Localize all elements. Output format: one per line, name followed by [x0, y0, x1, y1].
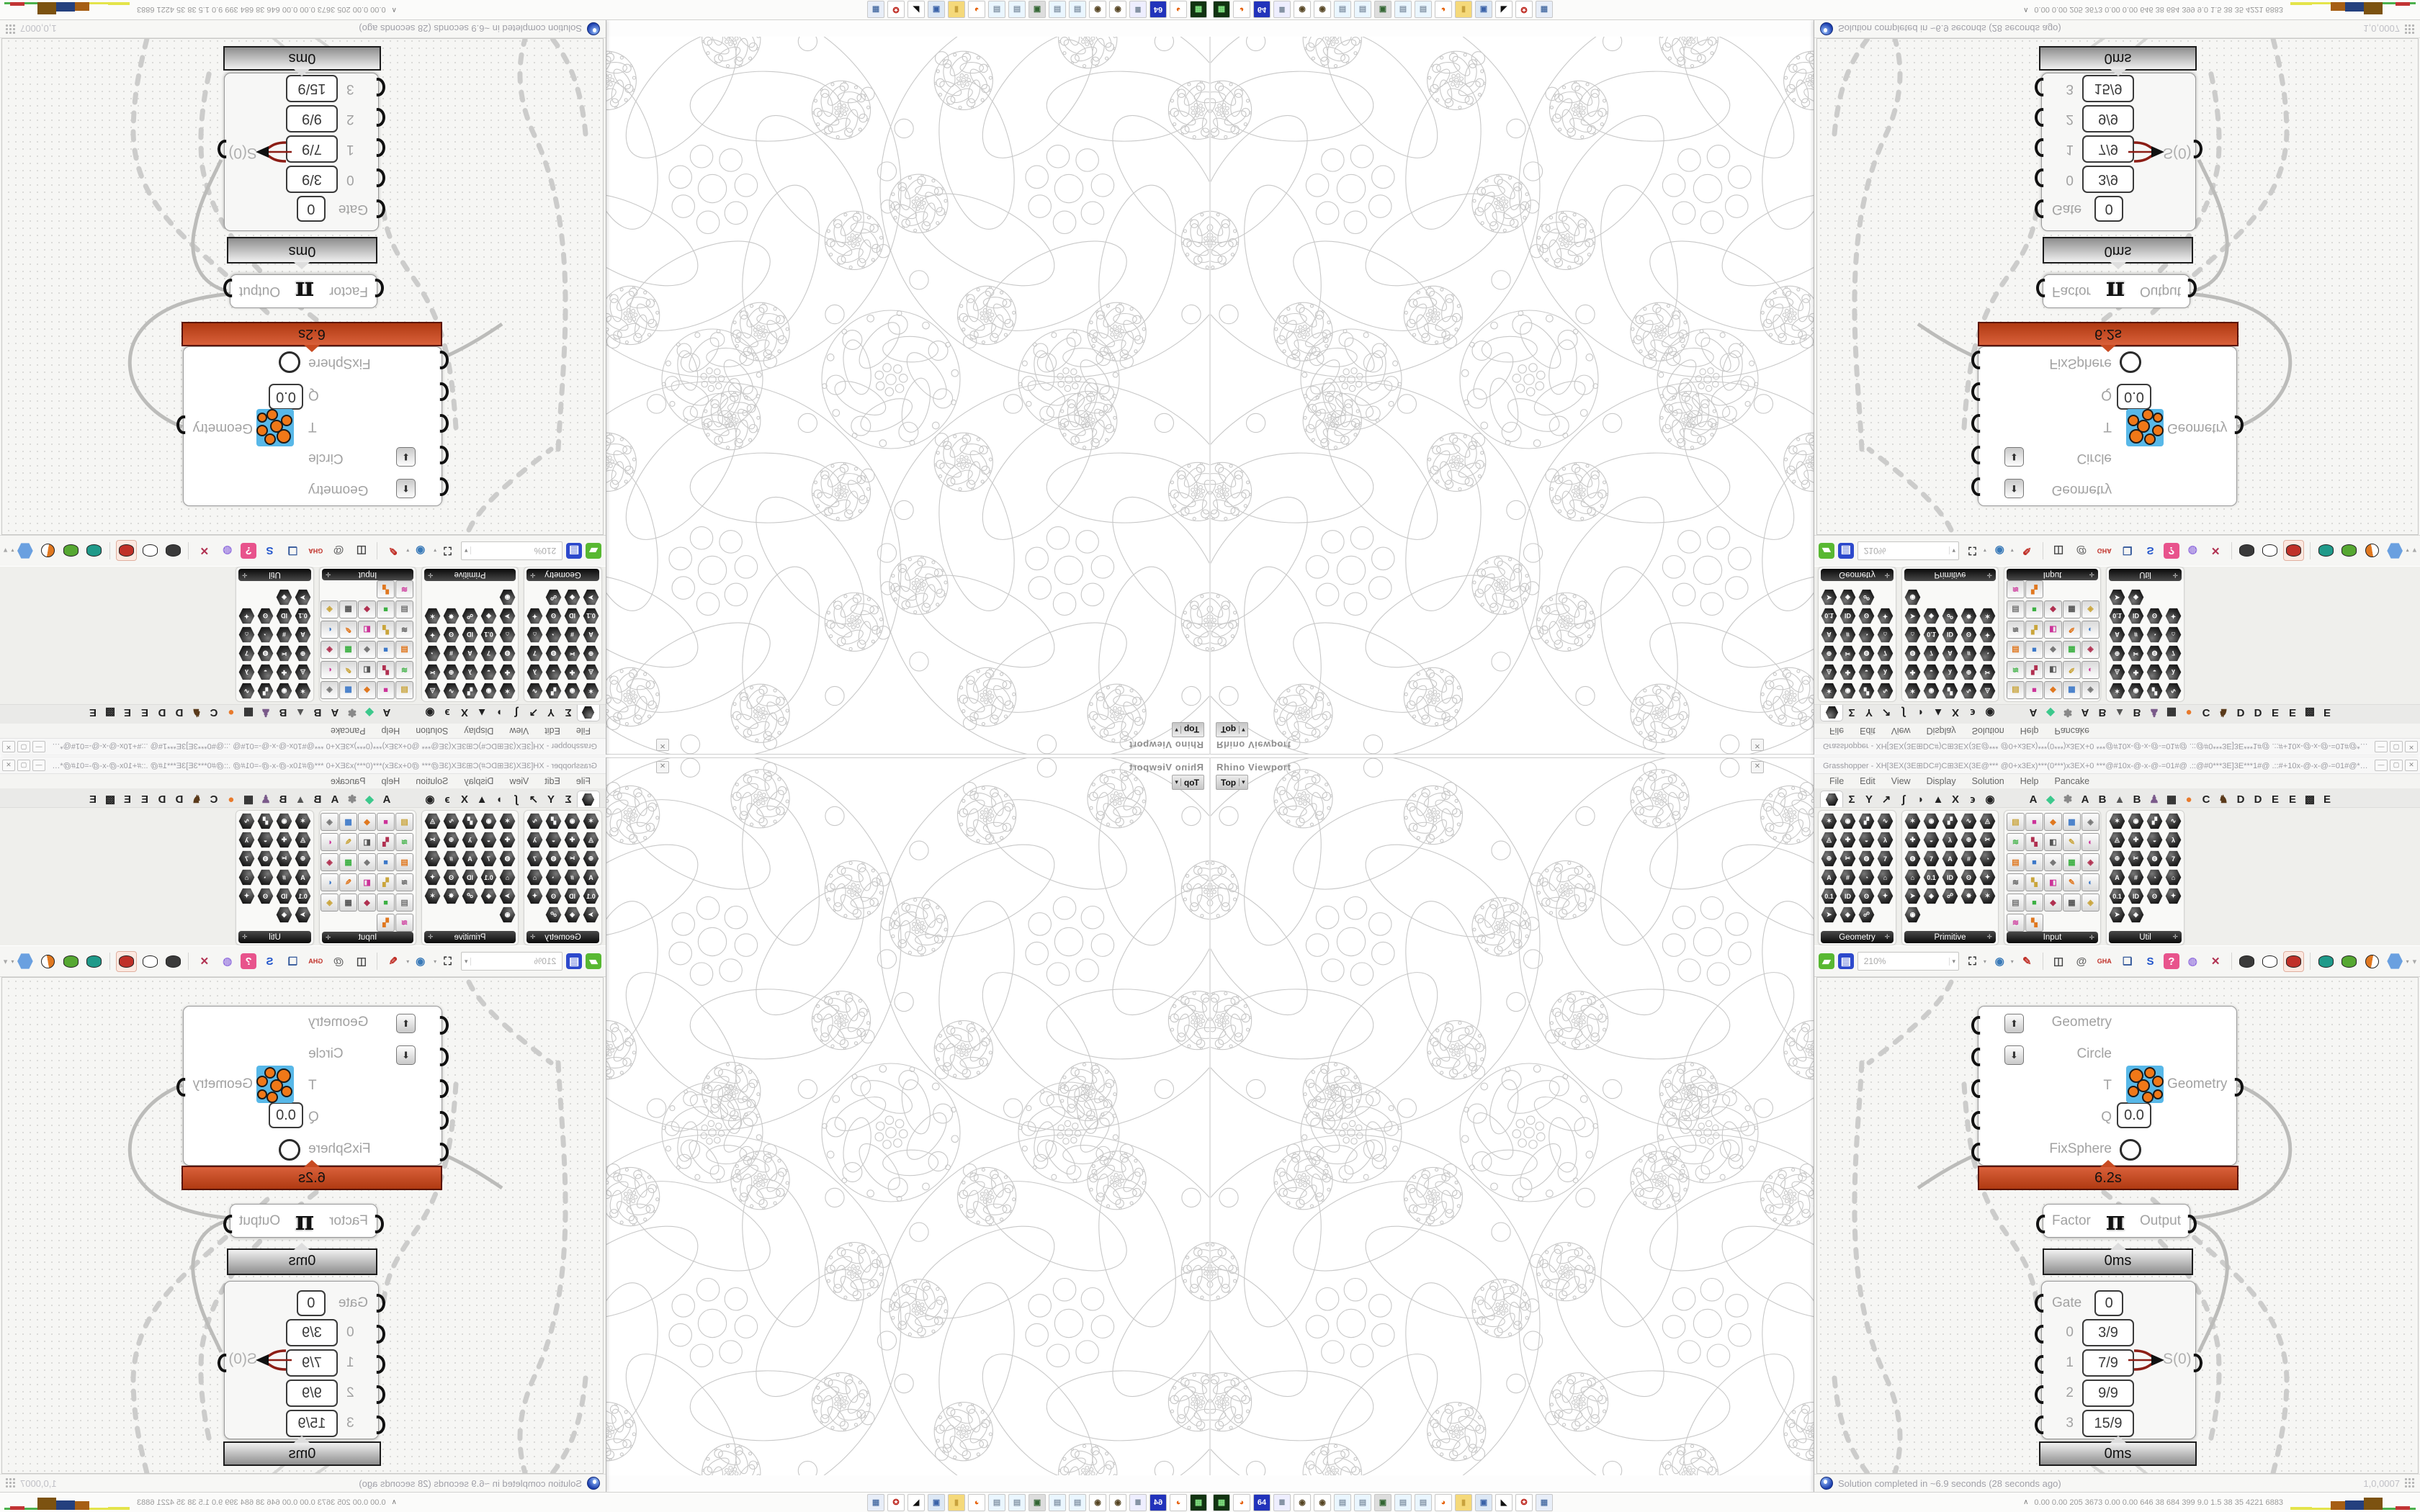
- tab-plugin-d1[interactable]: D: [171, 791, 188, 807]
- notepad3-icon[interactable]: ▤: [1008, 1494, 1026, 1511]
- tab-plugin-c[interactable]: C: [205, 791, 223, 807]
- ribbon-group-label[interactable]: Geometry✛: [526, 569, 599, 581]
- open-file-button[interactable]: ▰: [1819, 543, 1834, 559]
- menu-file[interactable]: File: [568, 726, 599, 736]
- component-icon[interactable]: ⌂: [2165, 626, 2182, 643]
- arrow-app-icon[interactable]: ◣: [907, 1, 925, 19]
- component-icon[interactable]: ✶: [499, 683, 516, 699]
- floppy64-icon[interactable]: 64: [1149, 1494, 1167, 1511]
- stream-gate-component[interactable]: Gate 0 03/917/929/9315/9 S(0): [2041, 73, 2196, 231]
- tab-plugin-b1[interactable]: B: [309, 705, 326, 721]
- wire-display-button[interactable]: ✕: [194, 541, 214, 561]
- component-icon[interactable]: ▦: [339, 894, 357, 912]
- component-icon[interactable]: ʘ: [1960, 869, 1977, 886]
- maximize-button[interactable]: ▢: [2390, 760, 2403, 771]
- component-icon[interactable]: ▚: [377, 661, 395, 679]
- component-icon[interactable]: ≋: [2007, 833, 2025, 851]
- component-icon[interactable]: λ: [2165, 664, 2182, 680]
- component-icon[interactable]: ⌂: [1877, 626, 1894, 643]
- arrow-app-icon[interactable]: ◣: [1495, 1494, 1512, 1511]
- component-icon[interactable]: 0.1: [1923, 626, 1940, 643]
- component-icon[interactable]: ≋: [2007, 914, 2025, 932]
- component-icon[interactable]: ⌂: [1904, 869, 1921, 886]
- input-grip-factor[interactable]: [2036, 279, 2051, 297]
- tab-surface[interactable]: ◗: [490, 705, 508, 721]
- tab-plugin-puppet[interactable]: ♟: [257, 791, 274, 807]
- component-icon[interactable]: ◍: [2146, 850, 2163, 867]
- component-icon[interactable]: ◈: [2081, 600, 2099, 618]
- tab-plugin-grid[interactable]: ▦: [2163, 705, 2180, 721]
- tab-vector[interactable]: ↗: [1878, 705, 1895, 721]
- tab-sets[interactable]: Y: [542, 705, 560, 721]
- preview-shaded-button[interactable]: [116, 541, 137, 562]
- firefox-icon[interactable]: ◕: [1233, 1, 1250, 19]
- floppy64-icon[interactable]: 64: [1149, 1, 1167, 19]
- input-grip-factor[interactable]: [369, 279, 384, 297]
- component-icon[interactable]: ID: [276, 608, 292, 624]
- component-icon[interactable]: ◉: [1839, 813, 1856, 829]
- component-icon[interactable]: ▦: [339, 681, 357, 699]
- component-icon[interactable]: ʘ: [443, 869, 460, 886]
- calculator-icon[interactable]: ▦: [1536, 1, 1553, 19]
- tab-curve[interactable]: ∫: [1895, 791, 1912, 807]
- component-icon[interactable]: ▤: [395, 853, 413, 871]
- component-icon[interactable]: 0.1: [1923, 869, 1940, 886]
- chevron-down-icon[interactable]: ▾: [2011, 548, 2014, 554]
- component-icon[interactable]: ◆: [358, 853, 376, 871]
- tab-display[interactable]: ◉: [1981, 705, 1999, 721]
- firefox-icon[interactable]: ◕: [1233, 1494, 1250, 1511]
- component-icon[interactable]: ◍: [1904, 850, 1921, 867]
- component-icon[interactable]: ⊕: [443, 832, 460, 848]
- component-icon[interactable]: ◐: [2081, 621, 2099, 639]
- component-icon[interactable]: ▚: [377, 914, 395, 932]
- component-icon[interactable]: ◧: [358, 621, 376, 639]
- component-icon[interactable]: ✚: [499, 832, 516, 848]
- component-icon[interactable]: ■: [2025, 853, 2043, 871]
- component-icon[interactable]: ◔: [2146, 626, 2163, 643]
- component-icon[interactable]: ◬: [1821, 664, 1837, 680]
- component-icon[interactable]: ◉: [276, 813, 292, 829]
- menu-view[interactable]: View: [501, 726, 537, 736]
- ribbon-group-label[interactable]: Util✛: [238, 931, 311, 943]
- component-icon[interactable]: ◧: [2044, 833, 2062, 851]
- input-grip-geometry[interactable]: [1971, 477, 1986, 496]
- component-icon[interactable]: ▞: [462, 813, 478, 829]
- component-icon[interactable]: #: [564, 626, 581, 643]
- component-icon[interactable]: ◬: [583, 832, 599, 848]
- component-icon[interactable]: ◧: [2044, 661, 2062, 679]
- chevron-down-icon[interactable]: ▾: [2406, 548, 2409, 554]
- tab-plugin-dotgrid[interactable]: ▩: [102, 791, 119, 807]
- component-icon[interactable]: ◈: [1839, 906, 1856, 923]
- pi-component[interactable]: Factor π Output: [2043, 274, 2190, 308]
- component-icon[interactable]: #: [1960, 645, 1977, 662]
- calculator-icon[interactable]: ▦: [1536, 1494, 1553, 1511]
- component-icon[interactable]: ◧: [2044, 873, 2062, 891]
- component-icon[interactable]: ▦: [2063, 813, 2081, 831]
- window-titlebar[interactable]: Grasshopper - XH[3EX(3E⊞DC#)C⊞3EX(3E@***…: [1814, 757, 2420, 774]
- component-icon[interactable]: ➤: [583, 589, 599, 606]
- seal2-icon[interactable]: ◉: [1314, 1494, 1331, 1511]
- tray-caret-icon[interactable]: ∧: [2023, 1498, 2028, 1506]
- arrow-app-icon[interactable]: ◣: [1495, 1, 1512, 19]
- script-doc-icon[interactable]: ≣: [1273, 1, 1291, 19]
- component-icon[interactable]: ✂: [1979, 832, 1996, 848]
- input-grip-t[interactable]: [434, 414, 449, 433]
- component-icon[interactable]: ◈: [321, 681, 339, 699]
- component-icon[interactable]: ID: [564, 888, 581, 904]
- menu-file[interactable]: File: [1821, 776, 1852, 786]
- display-hexagon-button[interactable]: [15, 952, 35, 971]
- tab-plugin-dotgrid[interactable]: ▩: [2301, 705, 2318, 721]
- publish-at-button[interactable]: @: [2072, 952, 2092, 971]
- q-value-chip[interactable]: 0.0: [2117, 384, 2151, 410]
- input-grip-geometry[interactable]: [1971, 1016, 1986, 1035]
- ribbon-group-label[interactable]: Input✛: [2007, 932, 2098, 943]
- component-icon[interactable]: ◉: [2128, 813, 2144, 829]
- component-icon[interactable]: 7: [1923, 850, 1940, 867]
- component-icon[interactable]: ▚: [2025, 661, 2043, 679]
- menu-solution[interactable]: Solution: [408, 776, 456, 786]
- component-icon[interactable]: ▤: [395, 681, 413, 699]
- component-icon[interactable]: ✚: [1904, 664, 1921, 680]
- tab-plugin-mountain[interactable]: ▲: [292, 705, 309, 721]
- component-icon[interactable]: ■: [377, 813, 395, 831]
- component-icon[interactable]: ◔: [2146, 869, 2163, 886]
- component-icon[interactable]: 7: [1923, 645, 1940, 662]
- component-icon[interactable]: ◍: [1858, 645, 1875, 662]
- component-icon[interactable]: ▤: [395, 813, 413, 831]
- preview-eye-button[interactable]: ◉: [411, 541, 430, 561]
- notepad-icon[interactable]: ▤: [1334, 1494, 1351, 1511]
- wire-display-button[interactable]: ✕: [2206, 541, 2226, 561]
- output-grip-output[interactable]: [223, 1215, 238, 1233]
- component-icon[interactable]: ▚: [2025, 914, 2043, 932]
- chevron-down-icon[interactable]: ▾: [1239, 778, 1245, 786]
- menu-solution[interactable]: Solution: [1964, 776, 2012, 786]
- component-icon[interactable]: ⊕: [295, 850, 311, 867]
- component-icon[interactable]: ▞: [1858, 683, 1875, 699]
- ribbon-group-label[interactable]: Primitive✛: [1904, 931, 1996, 943]
- preview-eye-button[interactable]: ◉: [1990, 541, 2009, 561]
- component-icon[interactable]: 7: [1877, 850, 1894, 867]
- tab-plugin-a1[interactable]: A: [2025, 705, 2042, 721]
- pi-component[interactable]: Factor π Output: [230, 1204, 377, 1238]
- component-icon[interactable]: ◧: [358, 873, 376, 891]
- tab-plugin-bird[interactable]: ♞: [188, 705, 205, 721]
- bake-green-button[interactable]: [61, 541, 81, 561]
- chevron-down-icon[interactable]: ▾: [434, 958, 436, 965]
- tab-plugin-gem[interactable]: ◆: [361, 791, 378, 807]
- component-icon[interactable]: ◍: [545, 850, 562, 867]
- chevron-down-icon[interactable]: ▾: [1984, 548, 1986, 554]
- component-icon[interactable]: ▦: [2063, 681, 2081, 699]
- component-icon[interactable]: ✂: [1839, 645, 1856, 662]
- gha-button[interactable]: GHA: [2094, 952, 2114, 971]
- firefox2-icon[interactable]: ◕: [968, 1494, 985, 1511]
- tab-plugin-d2[interactable]: D: [2249, 705, 2267, 721]
- stream-gate-component[interactable]: Gate 0 03/917/929/9315/9 S(0): [2041, 1281, 2196, 1439]
- component-icon[interactable]: ⊕: [583, 850, 599, 867]
- close-button[interactable]: ✕: [2, 760, 15, 771]
- tab-plugin-b2[interactable]: B: [274, 705, 292, 721]
- zoom-level-field[interactable]: 210%▾: [1857, 952, 1959, 971]
- chevron-down-icon[interactable]: ▾: [406, 958, 409, 965]
- component-icon[interactable]: ID: [276, 888, 292, 904]
- script-doc-icon[interactable]: ≣: [1273, 1494, 1291, 1511]
- component-icon[interactable]: ∿: [2165, 813, 2182, 829]
- resize-grip[interactable]: [5, 24, 15, 34]
- window-titlebar[interactable]: Grasshopper - XH[3EX(3E⊞DC#)C⊞3EX(3E@***…: [0, 738, 606, 755]
- component-icon[interactable]: #: [276, 626, 292, 643]
- computer-icon[interactable]: ▣: [1374, 1494, 1391, 1511]
- notepad4-icon[interactable]: ▤: [988, 1494, 1005, 1511]
- menu-view[interactable]: View: [1883, 726, 1919, 736]
- preview-shaded-button[interactable]: [2283, 541, 2304, 562]
- input-grip-q[interactable]: [1971, 1111, 1986, 1130]
- tab-transform[interactable]: ϶: [439, 791, 456, 807]
- component-icon[interactable]: ✸: [443, 608, 460, 624]
- component-icon[interactable]: ✎: [339, 621, 357, 639]
- folder-icon[interactable]: ▮: [1455, 1494, 1472, 1511]
- component-icon[interactable]: λ: [2165, 832, 2182, 848]
- component-icon[interactable]: 7: [2165, 850, 2182, 867]
- component-icon[interactable]: ■: [377, 641, 395, 659]
- component-icon[interactable]: ◒: [257, 832, 274, 848]
- component-icon[interactable]: ◈: [321, 894, 339, 912]
- component-icon[interactable]: ✂: [2128, 645, 2144, 662]
- input-grip-t[interactable]: [1971, 1079, 1986, 1098]
- component-icon[interactable]: ▦: [339, 641, 357, 659]
- component-icon[interactable]: A: [462, 645, 478, 662]
- component-icon[interactable]: ◈: [1923, 608, 1940, 624]
- open-file-button[interactable]: ▰: [1819, 953, 1834, 969]
- component-icon[interactable]: ✶: [1904, 813, 1921, 829]
- toolbar-collapse-button[interactable]: ▾: [2413, 546, 2417, 556]
- ribbon-group-label[interactable]: Util✛: [2109, 569, 2182, 581]
- chevron-down-icon[interactable]: ▾: [2011, 958, 2014, 965]
- resize-grip[interactable]: [2405, 1478, 2415, 1488]
- tab-maths[interactable]: Σ: [560, 705, 577, 721]
- menu-pancake[interactable]: Pancake: [323, 776, 374, 786]
- tab-vector[interactable]: ↗: [525, 705, 542, 721]
- folder-icon[interactable]: ▮: [948, 1, 965, 19]
- component-icon[interactable]: ✶: [295, 813, 311, 829]
- remote-control-button[interactable]: ◫: [2049, 952, 2069, 971]
- tab-intersect[interactable]: X: [1947, 705, 1964, 721]
- tab-mesh[interactable]: ▲: [1930, 705, 1947, 721]
- q-value-chip[interactable]: 0.0: [269, 384, 303, 410]
- tray-caret-icon[interactable]: ∧: [392, 1498, 397, 1506]
- red-badge-icon[interactable]: ✪: [1515, 1, 1533, 19]
- tab-plugin-a2[interactable]: A: [326, 791, 344, 807]
- material-sphere-button[interactable]: [38, 541, 58, 561]
- component-icon[interactable]: ✂: [2128, 850, 2144, 867]
- component-icon[interactable]: A: [583, 869, 599, 886]
- seal-icon[interactable]: ◉: [1294, 1, 1311, 19]
- component-icon[interactable]: ✦: [1877, 608, 1894, 624]
- component-icon[interactable]: A: [1821, 869, 1837, 886]
- screenshot-button[interactable]: ❏: [2117, 541, 2137, 561]
- tab-plugin-gem[interactable]: ◆: [361, 705, 378, 721]
- component-icon[interactable]: ∿: [443, 683, 460, 699]
- component-icon[interactable]: ▞: [1942, 813, 1958, 829]
- component-icon[interactable]: ▞: [462, 683, 478, 699]
- component-icon[interactable]: ■: [377, 894, 395, 912]
- idea-bulb-button[interactable]: ◍: [2183, 541, 2202, 561]
- component-icon[interactable]: ◆: [2044, 853, 2062, 871]
- component-icon[interactable]: ■: [2025, 681, 2043, 699]
- tab-plugin-e3[interactable]: E: [2318, 791, 2336, 807]
- close-icon[interactable]: ✕: [656, 739, 669, 751]
- component-icon[interactable]: ◔: [1979, 850, 1996, 867]
- stream-gate-component[interactable]: Gate 0 03/917/929/9315/9 S(0): [224, 73, 379, 231]
- component-icon[interactable]: ◆: [2044, 681, 2062, 699]
- component-icon[interactable]: ◧: [2044, 621, 2062, 639]
- tab-maths[interactable]: Σ: [560, 791, 577, 807]
- component-icon[interactable]: ◒: [545, 664, 562, 680]
- menu-solution[interactable]: Solution: [1964, 726, 2012, 736]
- display-hexagon-button[interactable]: [15, 541, 35, 561]
- component-icon[interactable]: ✚: [564, 832, 581, 848]
- component-icon[interactable]: 0.1: [583, 888, 599, 904]
- chevron-down-icon[interactable]: ▾: [434, 548, 436, 554]
- component-icon[interactable]: ▤: [395, 600, 413, 618]
- menu-pancake[interactable]: Pancake: [2046, 776, 2097, 786]
- seal2-icon[interactable]: ◉: [1089, 1494, 1106, 1511]
- component-icon[interactable]: ◧: [358, 833, 376, 851]
- preview-eye-button[interactable]: ◉: [1990, 952, 2009, 971]
- tab-plugin-gem[interactable]: ◆: [2042, 791, 2059, 807]
- component-icon[interactable]: ⊕: [295, 645, 311, 662]
- component-icon[interactable]: ▞: [2146, 683, 2163, 699]
- sketch-pen-button[interactable]: ✎: [383, 952, 403, 971]
- component-icon[interactable]: ➤: [2109, 589, 2125, 606]
- chevron-down-icon[interactable]: ▾: [1175, 778, 1181, 786]
- component-icon[interactable]: ✚: [276, 832, 292, 848]
- component-icon[interactable]: λ: [1942, 832, 1958, 848]
- component-icon[interactable]: ∿: [238, 683, 255, 699]
- component-icon[interactable]: ■: [377, 853, 395, 871]
- component-icon[interactable]: ▚: [377, 580, 395, 598]
- preview-off-button[interactable]: [163, 952, 183, 971]
- input-grip-geometry[interactable]: [434, 477, 449, 496]
- tab-sets[interactable]: Y: [542, 791, 560, 807]
- q-value-chip[interactable]: 0.0: [269, 1102, 303, 1128]
- fixsphere-component[interactable]: ⬆ ⬇ Geometry Circle T Q FixSphere 0.0: [183, 1006, 442, 1166]
- component-icon[interactable]: ʘ: [545, 608, 562, 624]
- component-icon[interactable]: #: [276, 869, 292, 886]
- tab-plugin-d1[interactable]: D: [2232, 791, 2249, 807]
- component-icon[interactable]: ◉: [499, 906, 516, 923]
- component-icon[interactable]: ◈: [2128, 906, 2144, 923]
- component-icon[interactable]: ʘ: [545, 888, 562, 904]
- component-icon[interactable]: 0.1: [1821, 888, 1837, 904]
- tab-sets[interactable]: Y: [1860, 705, 1878, 721]
- tab-plugin-mountain[interactable]: ▲: [292, 791, 309, 807]
- menu-solution[interactable]: Solution: [408, 726, 456, 736]
- component-icon[interactable]: ∿: [526, 683, 543, 699]
- rhino-viewport-panel[interactable]: Rhino Viewport ✕ Top ▾: [606, 757, 1210, 1475]
- notepad4-icon[interactable]: ▤: [1415, 1494, 1432, 1511]
- input-grip-circle[interactable]: [434, 1048, 449, 1066]
- firefox2-icon[interactable]: ◕: [968, 1, 985, 19]
- component-icon[interactable]: ≋: [2007, 873, 2025, 891]
- component-icon[interactable]: ⊕: [2109, 645, 2125, 662]
- component-icon[interactable]: ✂: [424, 664, 441, 680]
- component-icon[interactable]: ✎: [2063, 833, 2081, 851]
- component-icon[interactable]: ⌂: [1904, 626, 1921, 643]
- component-icon[interactable]: ➤: [1904, 888, 1921, 904]
- rhino-viewport-panel[interactable]: Rhino Viewport ✕ Top ▾: [1210, 37, 1814, 755]
- component-icon[interactable]: ◔: [1858, 869, 1875, 886]
- tab-plugin-e1[interactable]: E: [2267, 705, 2284, 721]
- component-icon[interactable]: ✚: [564, 664, 581, 680]
- zoom-level-field[interactable]: 210%▾: [461, 952, 563, 971]
- chevron-down-icon[interactable]: ▾: [406, 548, 409, 554]
- red-badge-icon[interactable]: ✪: [887, 1494, 905, 1511]
- close-button[interactable]: ✕: [2405, 760, 2418, 771]
- display-hexagon-button[interactable]: [2385, 541, 2405, 561]
- rhino-viewport-panel[interactable]: Rhino Viewport ✕ Top ▾: [606, 37, 1210, 755]
- find-button[interactable]: S: [260, 541, 279, 561]
- computer-icon[interactable]: ▣: [1028, 1494, 1046, 1511]
- close-button[interactable]: ✕: [2405, 741, 2418, 752]
- component-icon[interactable]: ◔: [545, 869, 562, 886]
- open-file-button[interactable]: ▰: [586, 953, 601, 969]
- notepad3-icon[interactable]: ▤: [1394, 1, 1412, 19]
- component-icon[interactable]: ID: [462, 626, 478, 643]
- wire-display-button[interactable]: ✕: [2206, 952, 2226, 971]
- component-icon[interactable]: ◒: [257, 664, 274, 680]
- notepad3-icon[interactable]: ▤: [1394, 1494, 1412, 1511]
- preview-wireframe-button[interactable]: [2260, 952, 2280, 971]
- component-icon[interactable]: ◈: [1923, 888, 1940, 904]
- chevron-down-icon[interactable]: ▾: [1949, 547, 1956, 555]
- floppy64-icon[interactable]: 64: [1253, 1494, 1270, 1511]
- component-icon[interactable]: ⊕: [583, 645, 599, 662]
- component-icon[interactable]: ✚: [2128, 832, 2144, 848]
- menu-view[interactable]: View: [501, 776, 537, 786]
- tab-plugin-e2[interactable]: E: [119, 705, 136, 721]
- component-icon[interactable]: ◔: [257, 626, 274, 643]
- bake-teal-button[interactable]: [2316, 541, 2336, 561]
- component-icon[interactable]: ◈: [2128, 589, 2144, 606]
- input-grip-fixsphere[interactable]: [1971, 1143, 1986, 1161]
- arrow-app-icon[interactable]: ◣: [907, 1494, 925, 1511]
- component-icon[interactable]: ✸: [1960, 608, 1977, 624]
- component-icon[interactable]: ☍: [1858, 906, 1875, 923]
- component-icon[interactable]: ◐: [321, 661, 339, 679]
- component-icon[interactable]: ◐: [2081, 873, 2099, 891]
- component-icon[interactable]: ➤: [499, 608, 516, 624]
- chevron-down-icon[interactable]: ▾: [2406, 958, 2409, 965]
- preview-eye-button[interactable]: ◉: [411, 952, 430, 971]
- notepad-icon[interactable]: ▤: [1334, 1, 1351, 19]
- component-icon[interactable]: ⊕: [2109, 850, 2125, 867]
- component-icon[interactable]: ◈: [2081, 853, 2099, 871]
- tab-plugin-b1[interactable]: B: [2094, 791, 2111, 807]
- component-icon[interactable]: ✎: [339, 661, 357, 679]
- menu-help[interactable]: Help: [2012, 776, 2047, 786]
- sketch-pen-button[interactable]: ✎: [2017, 952, 2037, 971]
- tab-plugin-dotgrid[interactable]: ▩: [102, 705, 119, 721]
- component-icon[interactable]: ✎: [339, 873, 357, 891]
- component-icon[interactable]: λ: [526, 832, 543, 848]
- red-badge-icon[interactable]: ✪: [887, 1, 905, 19]
- tab-plugin-orange[interactable]: ●: [2180, 705, 2197, 721]
